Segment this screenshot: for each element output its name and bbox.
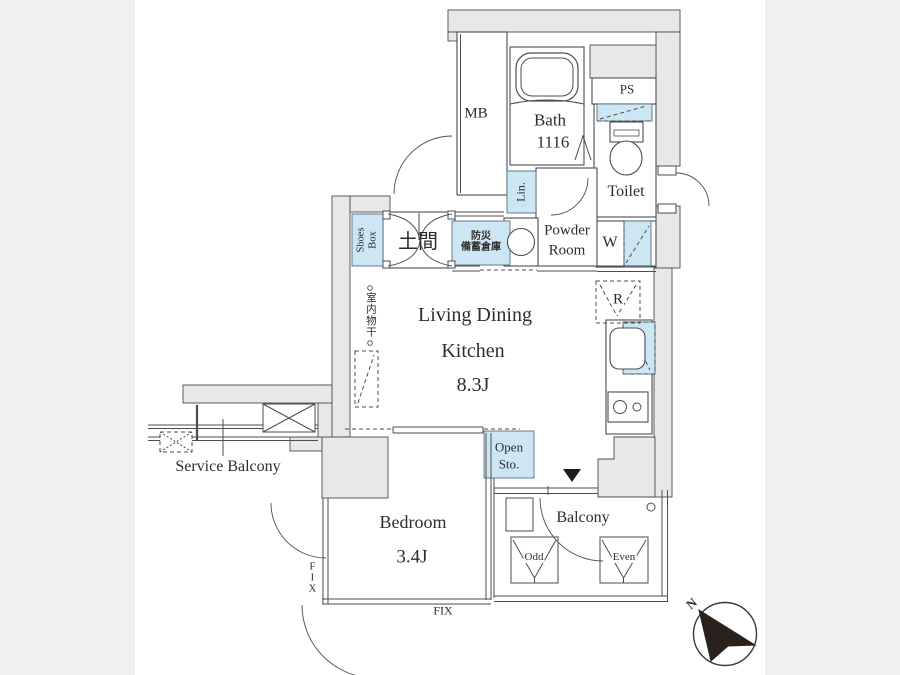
kitchen-sink-icon: [610, 328, 645, 369]
label-ac-even: Even: [612, 551, 637, 563]
label-open-storage-1: Open: [495, 441, 523, 456]
label-shoes-box-line1: Shoes: [355, 227, 367, 252]
room-label-powder-2: Room: [549, 243, 586, 260]
label-fix-window-side: FIX: [306, 562, 318, 595]
room-label-meter-box: MB: [464, 106, 487, 123]
label-washer: W: [602, 234, 617, 252]
room-label-bath: Bath: [534, 110, 566, 129]
label-shoes-box: Shoes Box: [355, 227, 379, 252]
label-disaster-line1: 防災: [461, 231, 501, 242]
room-label-doma: 土間: [398, 231, 438, 253]
room-label-service-balcony: Service Balcony: [175, 458, 280, 476]
room-label-toilet: Toilet: [607, 183, 644, 201]
stove-burner-large: [614, 401, 627, 414]
room-label-bath-size: 1116: [537, 132, 570, 151]
room-label-bedroom-size: 3.4J: [396, 546, 427, 567]
label-indoor-drying: 室内物干: [364, 292, 376, 338]
door-arc-entrance: [676, 173, 709, 206]
label-linen: Lin.: [514, 182, 527, 202]
door-arc-bedroom-bottom: [302, 605, 375, 675]
room-label-bedroom: Bedroom: [380, 512, 447, 532]
stove-burner-small: [633, 403, 641, 411]
label-refrigerator: R: [612, 292, 624, 309]
floor-plan-drawing: [0, 0, 900, 675]
room-label-ldk-size: 8.3J: [457, 374, 490, 396]
label-open-storage-2: Sto.: [499, 458, 520, 473]
label-shoes-box-line2: Box: [367, 227, 379, 252]
room-label-powder-1: Powder: [544, 223, 590, 240]
label-disaster-storage: 防災 備蓄倉庫: [461, 231, 501, 253]
label-ac-odd: Odd: [524, 551, 545, 563]
door-arc-bedroom-left: [271, 503, 326, 558]
drying-hook-icon: [368, 341, 373, 346]
room-label-balcony: Balcony: [556, 509, 609, 527]
entrance-direction-triangle: [563, 469, 581, 482]
bathtub-inner: [521, 58, 573, 96]
label-fix-window-bottom: FIX: [433, 604, 452, 617]
label-disaster-line2: 備蓄倉庫: [461, 242, 501, 253]
room-label-ldk-1: Living Dining: [418, 304, 532, 326]
door-arc-hall: [394, 136, 452, 194]
compass-icon: [694, 603, 757, 666]
room-label-ldk-2: Kitchen: [441, 340, 504, 362]
washbasin-icon: [508, 229, 535, 256]
room-label-pipe-space: PS: [620, 83, 634, 98]
floor-plan-page: MB PS Bath 1116 Toilet Lin. Powder Room …: [0, 0, 900, 675]
drying-hook-icon: [368, 286, 373, 291]
toilet-bowl-icon: [610, 141, 642, 175]
